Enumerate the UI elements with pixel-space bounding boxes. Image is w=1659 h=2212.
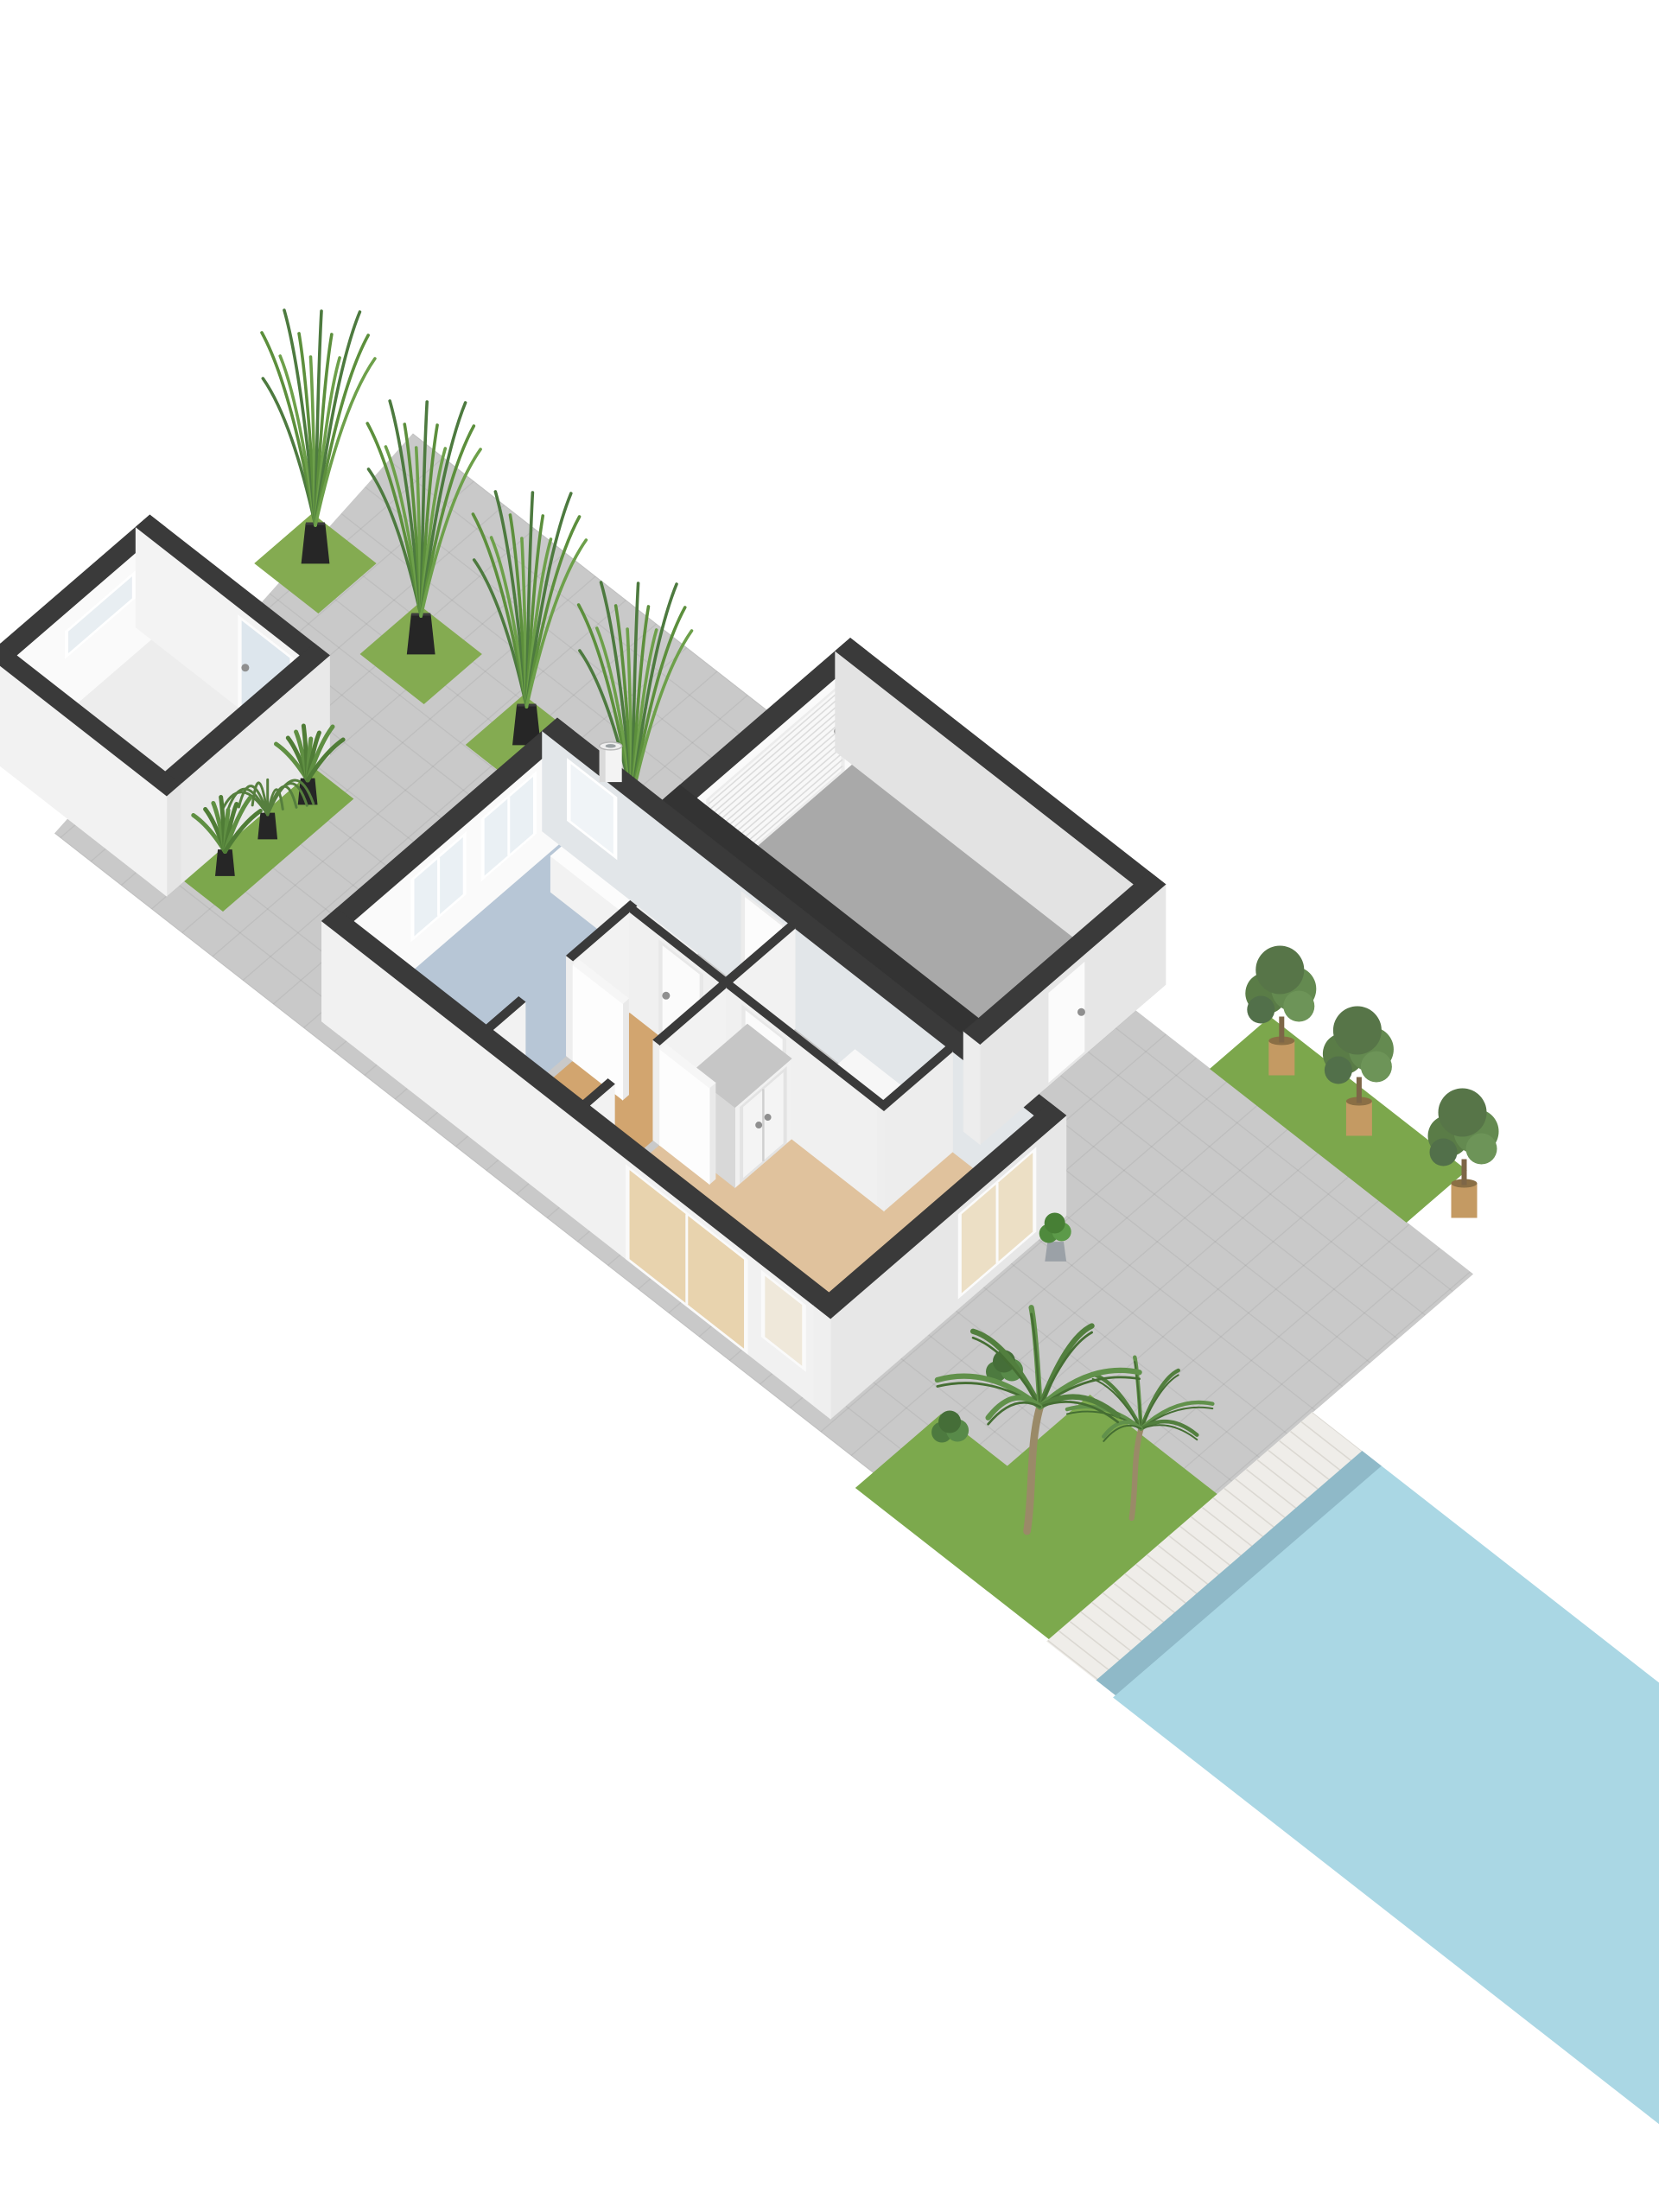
tree-foliage — [1439, 1089, 1487, 1137]
floorplan-3d-view — [0, 0, 1659, 2212]
handle — [662, 992, 670, 1000]
chimney-flue — [606, 744, 616, 747]
tree-foliage — [1361, 1052, 1392, 1083]
handle — [755, 1122, 762, 1128]
planter-box — [407, 614, 435, 654]
chimney — [600, 742, 622, 782]
tree-trunk — [1357, 1077, 1362, 1103]
planter-box — [302, 524, 329, 563]
garage-wall-se-face-sw — [963, 1032, 980, 1145]
tree-trunk — [1462, 1160, 1467, 1185]
planter-box — [215, 850, 234, 876]
tree-pot — [1268, 1041, 1294, 1076]
bush-clump — [938, 1411, 961, 1433]
kitchen-door-leaf-face-se — [623, 999, 629, 1100]
handle — [765, 1114, 772, 1121]
planter-box — [258, 813, 277, 839]
tree-foliage — [1430, 1139, 1458, 1166]
living-door-leaf-face-se — [709, 1083, 715, 1184]
chimney-shade — [600, 746, 606, 782]
shed-wall-sw-face-se — [167, 784, 181, 896]
tree-pot — [1346, 1102, 1372, 1136]
handle — [1077, 1008, 1085, 1016]
olive-tree-3 — [1428, 1089, 1499, 1218]
wall-hall-living-a-face-sw — [653, 1040, 660, 1146]
wall-kitchen-hall-a-face-sw — [566, 956, 573, 1061]
tree-foliage — [1283, 991, 1314, 1022]
tree-foliage — [1325, 1057, 1352, 1084]
tree-pot — [1452, 1184, 1478, 1218]
tree-foliage — [1466, 1134, 1497, 1165]
tree-foliage — [1247, 996, 1274, 1024]
storage-wall-se-face-sw — [877, 1106, 884, 1211]
tree-foliage — [1333, 1007, 1382, 1055]
plant-pot — [1046, 1243, 1066, 1262]
plant-foliage — [1045, 1213, 1065, 1234]
house-wall-se-face-sw — [814, 1306, 830, 1419]
tree-foliage — [1255, 946, 1304, 995]
floorplan-3d-page — [0, 0, 1659, 2212]
handle — [241, 664, 249, 671]
tree-trunk — [1279, 1017, 1284, 1043]
